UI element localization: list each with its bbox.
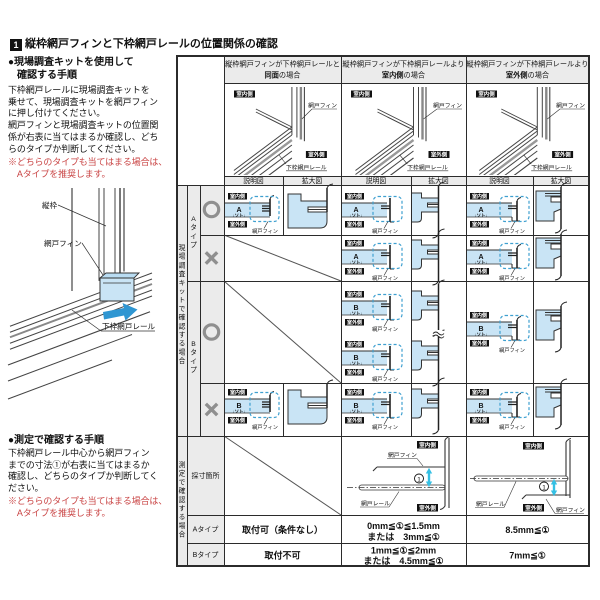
svg-text:室外側: 室外側 xyxy=(472,221,487,228)
svg-text:室内側: 室内側 xyxy=(347,341,362,348)
svg-text:室外側: 室外側 xyxy=(230,221,245,228)
svg-text:網戸フィン: 網戸フィン xyxy=(499,423,525,431)
svg-text:↓ソト↓: ↓ソト↓ xyxy=(349,409,362,414)
svg-text:↓ソト↓: ↓ソト↓ xyxy=(349,260,362,265)
svg-text:室外側: 室外側 xyxy=(308,150,325,158)
svg-text:採寸箇所: 採寸箇所 xyxy=(192,471,220,480)
svg-text:室内側の場合: 室内側の場合 xyxy=(382,71,425,80)
svg-text:室外側: 室外側 xyxy=(555,150,572,158)
svg-text:網戸フィン: 網戸フィン xyxy=(499,346,525,354)
svg-text:室内側: 室内側 xyxy=(419,441,436,449)
svg-text:網戸フィン: 網戸フィン xyxy=(556,102,585,110)
svg-text:室外側: 室外側 xyxy=(347,319,362,326)
svg-text:室外側: 室外側 xyxy=(472,417,487,424)
svg-text:8.5mm≦①: 8.5mm≦① xyxy=(505,525,549,535)
svg-text:網戸フィン: 網戸フィン xyxy=(372,375,398,383)
svg-text:網戸フィン: 網戸フィン xyxy=(44,238,82,248)
svg-text:室内側: 室内側 xyxy=(472,240,487,247)
svg-text:網戸フィン: 網戸フィン xyxy=(308,102,337,110)
svg-text:室内側: 室内側 xyxy=(230,193,245,200)
svg-text:室内側: 室内側 xyxy=(230,389,245,396)
svg-text:下枠網戸レール: 下枠網戸レール xyxy=(286,164,327,172)
svg-text:1mm≦①≦2mm: 1mm≦①≦2mm xyxy=(371,546,436,556)
svg-text:縦枠網戸フィンが下枠網戸レールより: 縦枠網戸フィンが下枠網戸レールより xyxy=(343,60,465,69)
svg-text:または 3mm≦①: または 3mm≦① xyxy=(367,532,440,542)
svg-text:測定で確認する場合: 測定で確認する場合 xyxy=(179,460,186,539)
svg-text:拡大図: 拡大図 xyxy=(551,176,572,185)
svg-text:↓ソト↓: ↓ソト↓ xyxy=(474,213,487,218)
svg-text:↓ソト↓: ↓ソト↓ xyxy=(349,361,362,366)
svg-text:室内側: 室内側 xyxy=(472,312,487,319)
svg-text:説明図: 説明図 xyxy=(489,176,510,185)
svg-text:網戸フィン: 網戸フィン xyxy=(372,227,398,235)
svg-text:↓ソト↓: ↓ソト↓ xyxy=(232,213,245,218)
svg-text:室内側: 室内側 xyxy=(472,389,487,396)
svg-text:縦枠: 縦枠 xyxy=(42,200,58,210)
svg-text:室内側: 室内側 xyxy=(347,193,362,200)
svg-text:網戸フィン: 網戸フィン xyxy=(252,423,278,431)
svg-text:室外側: 室外側 xyxy=(525,504,542,512)
svg-text:網戸フィン: 網戸フィン xyxy=(499,274,525,282)
svg-text:室内側: 室内側 xyxy=(347,240,362,247)
svg-text:室内側: 室内側 xyxy=(347,291,362,298)
svg-text:室内側: 室内側 xyxy=(353,90,370,98)
svg-text:0mm≦①≦1.5mm: 0mm≦①≦1.5mm xyxy=(367,521,440,531)
svg-text:↓ソト↓: ↓ソト↓ xyxy=(474,332,487,337)
svg-text:網戸フィン: 網戸フィン xyxy=(372,325,398,333)
svg-text:室外側: 室外側 xyxy=(472,340,487,347)
svg-text:説明図: 説明図 xyxy=(366,176,387,185)
svg-text:↓ソト↓: ↓ソト↓ xyxy=(474,409,487,414)
svg-text:取付可（条件なし）: 取付可（条件なし） xyxy=(242,524,323,535)
svg-text:室外側: 室外側 xyxy=(472,268,487,275)
svg-text:下枠網戸レール: 下枠網戸レール xyxy=(102,321,156,331)
svg-text:網戸フィン: 網戸フィン xyxy=(372,423,398,431)
svg-text:取付不可: 取付不可 xyxy=(264,550,300,561)
svg-text:Bタイプ: Bタイプ xyxy=(193,550,219,559)
svg-text:網戸フィン: 網戸フィン xyxy=(499,227,525,235)
svg-text:縦枠網戸フィンが下枠網戸レールより: 縦枠網戸フィンが下枠網戸レールより xyxy=(467,60,589,69)
svg-text:室外側: 室外側 xyxy=(230,417,245,424)
svg-text:室内側: 室内側 xyxy=(472,193,487,200)
svg-text:下枠網戸レール: 下枠網戸レール xyxy=(407,164,448,172)
svg-text:室外側: 室外側 xyxy=(347,417,362,424)
svg-text:または 4.5mm≦①: または 4.5mm≦① xyxy=(363,556,443,566)
svg-text:網戸レール: 網戸レール xyxy=(476,500,505,508)
svg-text:網戸フィン: 網戸フィン xyxy=(388,451,417,459)
svg-text:網戸フィン: 網戸フィン xyxy=(372,274,398,282)
svg-text:説明図: 説明図 xyxy=(243,176,264,185)
svg-text:同面の場合: 同面の場合 xyxy=(265,71,301,80)
svg-text:拡大図: 拡大図 xyxy=(428,176,449,185)
svg-text:↓ソト↓: ↓ソト↓ xyxy=(349,213,362,218)
svg-text:1: 1 xyxy=(542,485,546,492)
svg-text:下枠網戸レール: 下枠網戸レール xyxy=(531,164,572,172)
svg-text:室外側: 室外側 xyxy=(419,504,436,512)
svg-text:↓ソト↓: ↓ソト↓ xyxy=(349,311,362,316)
svg-text:7mm≦①: 7mm≦① xyxy=(509,551,546,561)
svg-text:網戸レール: 網戸レール xyxy=(361,500,390,508)
svg-text:室外側: 室外側 xyxy=(431,150,448,158)
svg-text:網戸フィン: 網戸フィン xyxy=(433,102,462,110)
svg-text:Aタイプ: Aタイプ xyxy=(193,525,219,534)
svg-text:室外側の場合: 室外側の場合 xyxy=(506,71,549,80)
svg-text:室内側: 室内側 xyxy=(478,90,495,98)
svg-text:室外側: 室外側 xyxy=(347,369,362,376)
svg-text:網戸フィン: 網戸フィン xyxy=(556,506,585,514)
svg-text:室外側: 室外側 xyxy=(347,221,362,228)
svg-text:室外側: 室外側 xyxy=(347,268,362,275)
svg-text:1: 1 xyxy=(417,477,421,484)
svg-text:室内側: 室内側 xyxy=(236,90,253,98)
svg-text:拡大図: 拡大図 xyxy=(302,176,323,185)
svg-text:↓ソト↓: ↓ソト↓ xyxy=(474,260,487,265)
svg-text:室内側: 室内側 xyxy=(347,389,362,396)
svg-text:縦枠網戸フィンが下枠網戸レールと: 縦枠網戸フィンが下枠網戸レールと xyxy=(225,60,340,69)
svg-text:網戸フィン: 網戸フィン xyxy=(252,227,278,235)
svg-text:室内側: 室内側 xyxy=(525,442,542,450)
svg-text:↓ソト↓: ↓ソト↓ xyxy=(232,409,245,414)
